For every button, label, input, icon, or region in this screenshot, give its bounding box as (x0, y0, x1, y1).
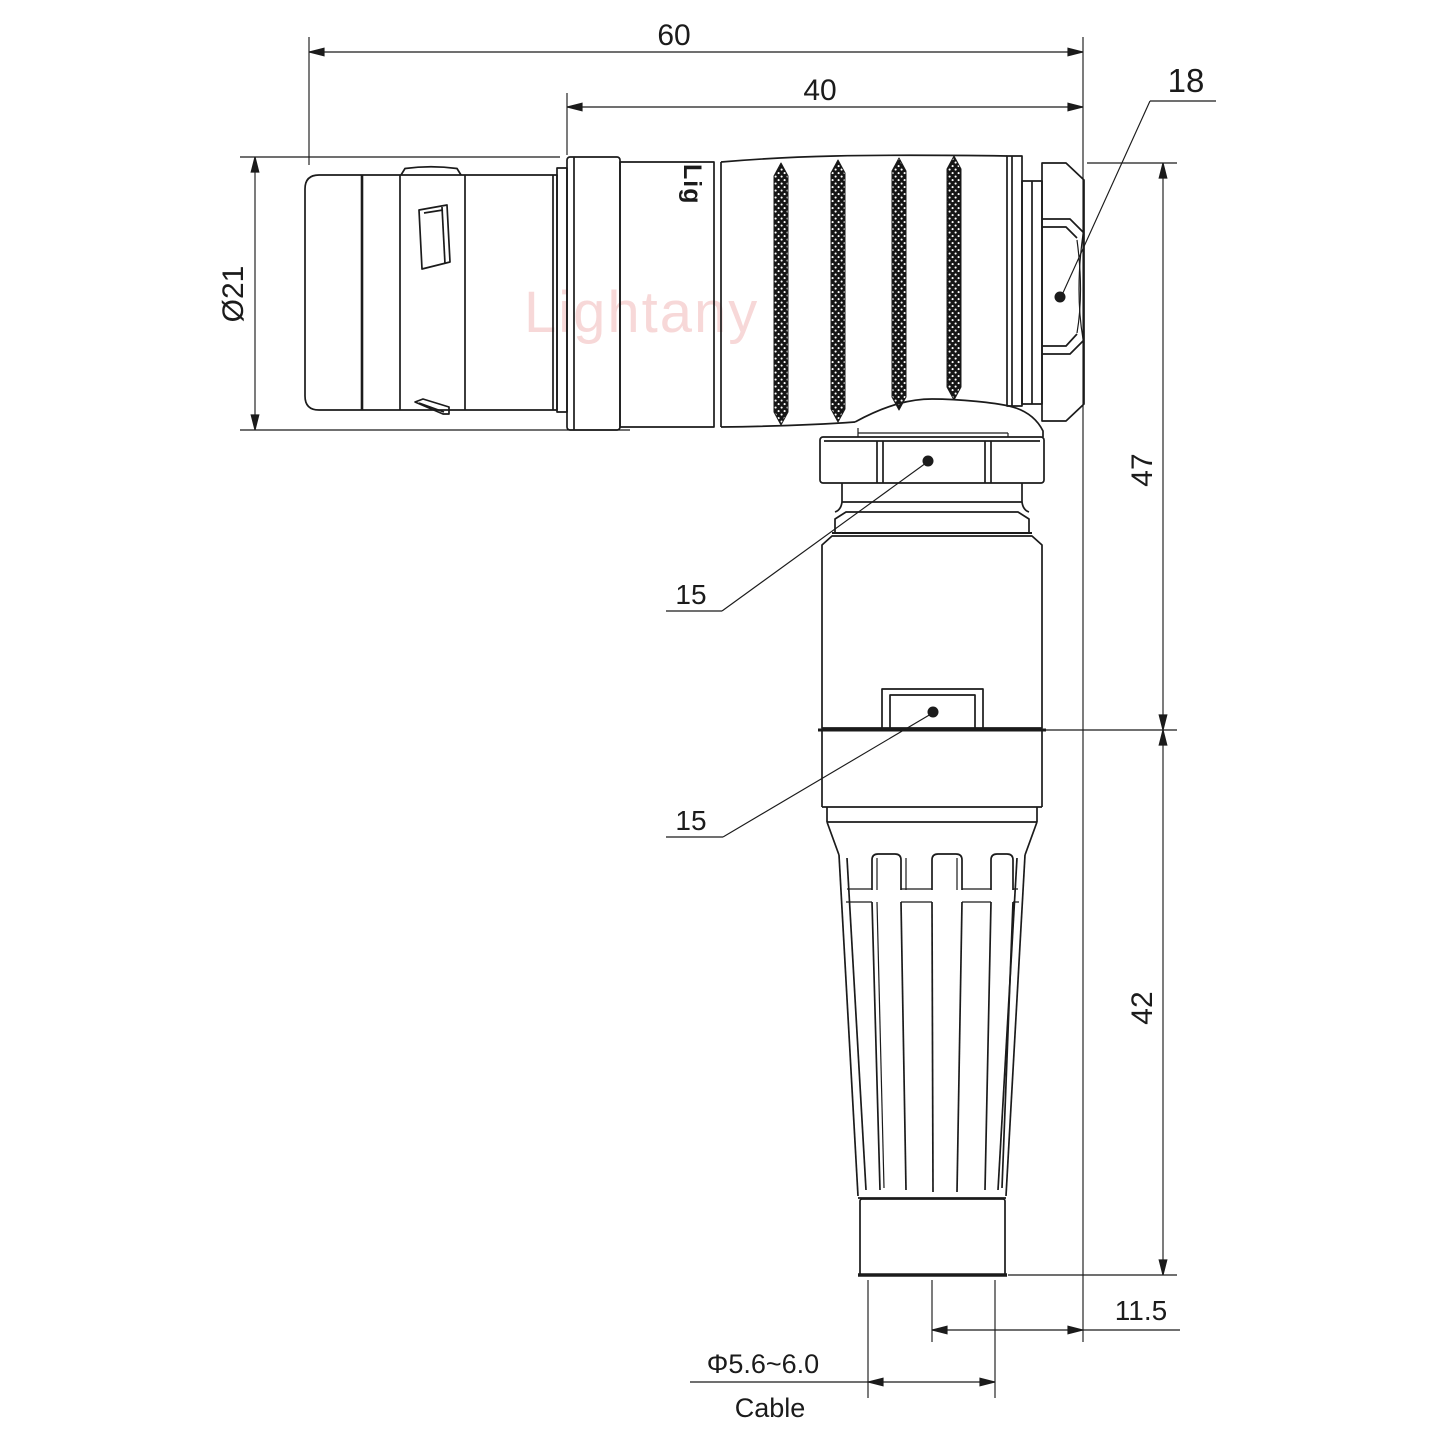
dim-11-5-label: 11.5 (1115, 1295, 1167, 1326)
boot-collar (827, 807, 1037, 855)
connector-drawing: Lightany (0, 0, 1440, 1440)
dim-cable-diameter (690, 1280, 995, 1398)
leader-backnut (1055, 101, 1217, 303)
knurl-strip (892, 158, 906, 410)
knurl-strip (774, 163, 788, 425)
neck (1022, 181, 1042, 404)
dim-42-label: 42 (1126, 991, 1159, 1024)
dim-height-upper (1044, 163, 1177, 730)
grip-cap (1007, 156, 1022, 406)
dim-15a-label: 15 (675, 579, 706, 610)
dim-15b-label: 15 (675, 805, 706, 836)
strain-relief-boot (839, 854, 1025, 1198)
keyway-window (419, 205, 450, 269)
dim-47-label: 47 (1126, 453, 1159, 486)
elbow-transition (855, 399, 1043, 437)
knurl-strip (947, 156, 961, 400)
elbow-body (818, 536, 1046, 807)
dimension-annotations (240, 37, 1216, 1398)
knurl-section (721, 155, 1007, 427)
dim-18-label: 18 (1168, 62, 1205, 99)
front-sleeve (305, 167, 557, 414)
cable-word-label: Cable (735, 1393, 806, 1423)
dim-dia21-label: Ø21 (217, 266, 250, 323)
dim-overall-length (309, 37, 1083, 165)
key-bump (401, 167, 461, 175)
technical-drawing-page: Lightany (0, 0, 1440, 1440)
dim-60-label: 60 (657, 19, 690, 52)
vertical-elbow-view (818, 437, 1046, 1275)
cable-exit-tip (858, 1199, 1007, 1275)
dim-40-label: 40 (803, 74, 836, 107)
neck-rings (832, 483, 1032, 533)
watermark-text: Lightany (524, 280, 759, 345)
body-engraving-text: Lig (678, 164, 706, 205)
leader-latch (666, 707, 939, 838)
key-flag (415, 399, 449, 414)
knurl-strip (831, 160, 845, 422)
dim-cable-dia-label: Φ5.6~6.0 (707, 1349, 819, 1379)
